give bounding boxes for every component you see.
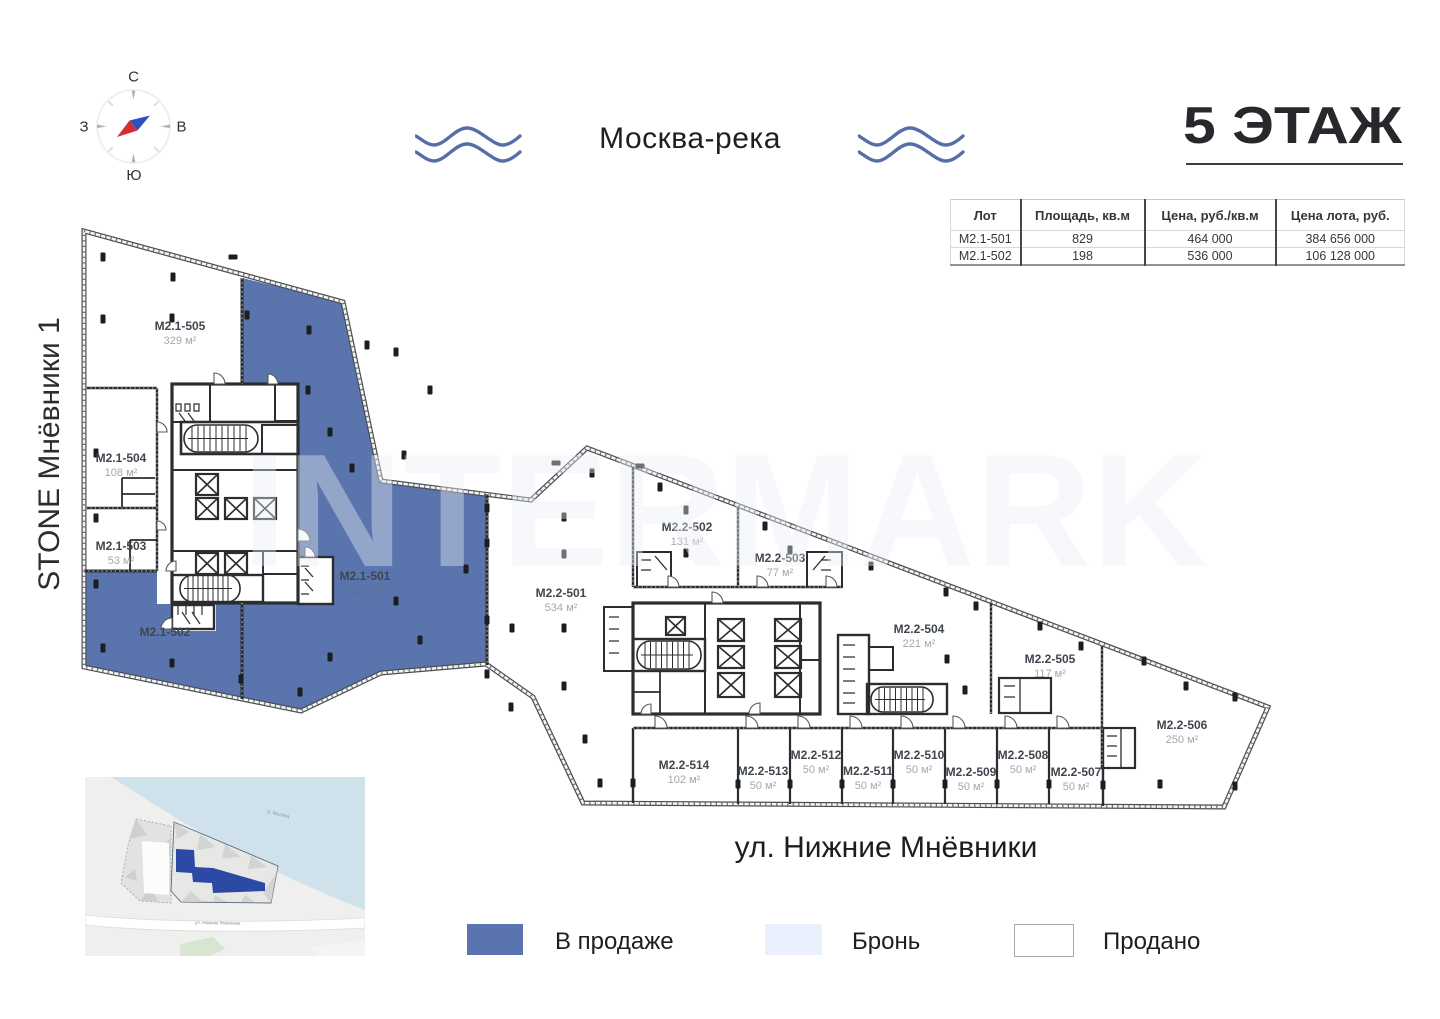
svg-text:50 м²: 50 м² bbox=[906, 764, 933, 776]
svg-text:50 м²: 50 м² bbox=[1010, 764, 1037, 776]
svg-text:М2.1-503: М2.1-503 bbox=[96, 539, 147, 553]
svg-text:М2.2-513: М2.2-513 bbox=[738, 764, 789, 778]
svg-text:М2.1-504: М2.1-504 bbox=[96, 451, 147, 465]
svg-text:ул. Нижние Мнёвники: ул. Нижние Мнёвники bbox=[195, 920, 241, 926]
svg-text:INTERMARK: INTERMARK bbox=[242, 421, 1208, 601]
svg-text:М2.2-510: М2.2-510 bbox=[894, 748, 945, 762]
svg-text:М2.2-504: М2.2-504 bbox=[894, 622, 945, 636]
svg-text:250 м²: 250 м² bbox=[1166, 734, 1199, 746]
svg-text:М2.2-514: М2.2-514 bbox=[659, 758, 710, 772]
svg-text:М2.2-506: М2.2-506 bbox=[1157, 718, 1208, 732]
svg-text:50 м²: 50 м² bbox=[803, 764, 830, 776]
svg-text:198 м²: 198 м² bbox=[149, 641, 182, 653]
svg-text:50 м²: 50 м² bbox=[958, 781, 985, 793]
svg-text:53 м²: 53 м² bbox=[108, 555, 135, 567]
svg-text:М2.1-505: М2.1-505 bbox=[155, 319, 206, 333]
svg-text:534 м²: 534 м² bbox=[545, 602, 578, 614]
svg-text:М2.2-511: М2.2-511 bbox=[843, 764, 893, 778]
svg-text:117 м²: 117 м² bbox=[1034, 668, 1066, 680]
svg-text:50 м²: 50 м² bbox=[1063, 781, 1090, 793]
svg-text:329 м²: 329 м² bbox=[164, 335, 197, 347]
svg-text:221 м²: 221 м² bbox=[903, 638, 936, 650]
svg-text:М2.2-507: М2.2-507 bbox=[1051, 765, 1102, 779]
svg-text:50 м²: 50 м² bbox=[750, 780, 777, 792]
svg-text:М2.2-505: М2.2-505 bbox=[1025, 652, 1076, 666]
svg-text:М2.1-502: М2.1-502 bbox=[140, 625, 191, 639]
svg-text:108 м²: 108 м² bbox=[105, 467, 138, 479]
svg-text:М2.2-509: М2.2-509 bbox=[946, 765, 997, 779]
svg-text:102 м²: 102 м² bbox=[668, 774, 701, 786]
svg-text:М2.2-508: М2.2-508 bbox=[998, 748, 1049, 762]
svg-text:М2.2-512: М2.2-512 bbox=[791, 748, 842, 762]
svg-text:50 м²: 50 м² bbox=[855, 780, 882, 792]
